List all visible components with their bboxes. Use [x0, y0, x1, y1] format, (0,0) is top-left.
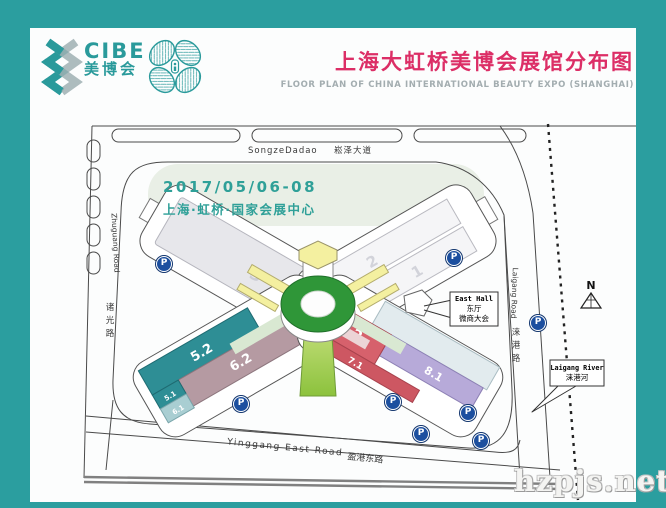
watermark: hzpjs.net	[514, 464, 666, 498]
road-label-right-cn-3: 路	[512, 353, 521, 364]
road-label-bottom-en: Yinggang East Road	[226, 437, 344, 458]
east-hall-line2: 东厅	[467, 303, 482, 313]
river-label-en: Laigang River	[550, 364, 603, 372]
road-label-left-cn-2: 光	[106, 315, 115, 326]
poster-frame: CIBE 美博会 上海大虹桥美博会展馆分布图 FLOOR PLAN OF CHI…	[0, 0, 666, 508]
compass-n-label: N	[586, 279, 595, 292]
road-label-right-cn-2: 港	[512, 340, 521, 351]
road-label-top-cn: 崧泽大道	[334, 145, 372, 156]
central-ring	[281, 276, 355, 342]
floor-plan-map: 3 2 1 5.2 6.2 5.1 6.1	[0, 0, 666, 508]
road-label-left-en: Zhuguang Road	[109, 213, 121, 273]
river-line	[548, 124, 578, 500]
event-venue: 上海·虹桥·国家会展中心	[163, 202, 316, 217]
river-label-cn: 涞港河	[566, 372, 589, 382]
event-date: 2017/05/06-08	[163, 178, 317, 196]
road-label-left-cn-3: 路	[106, 328, 115, 339]
east-hall-line3: 微商大会	[459, 313, 489, 323]
road-label-right-cn-1: 涞	[512, 328, 521, 338]
east-hall-line1: East Hall	[455, 295, 493, 303]
compass-icon: N	[581, 279, 601, 308]
road-label-top-en: SongzeDadao	[248, 146, 318, 156]
road-label-left-cn-1: 诸	[106, 303, 115, 313]
bottom-road-edge	[84, 477, 562, 489]
road-label-bottom-cn: 盈港东路	[347, 450, 384, 465]
east-hall-callout: East Hall 东厅 微商大会	[424, 292, 498, 326]
road-label-right-en: Laigang Road	[509, 267, 520, 318]
